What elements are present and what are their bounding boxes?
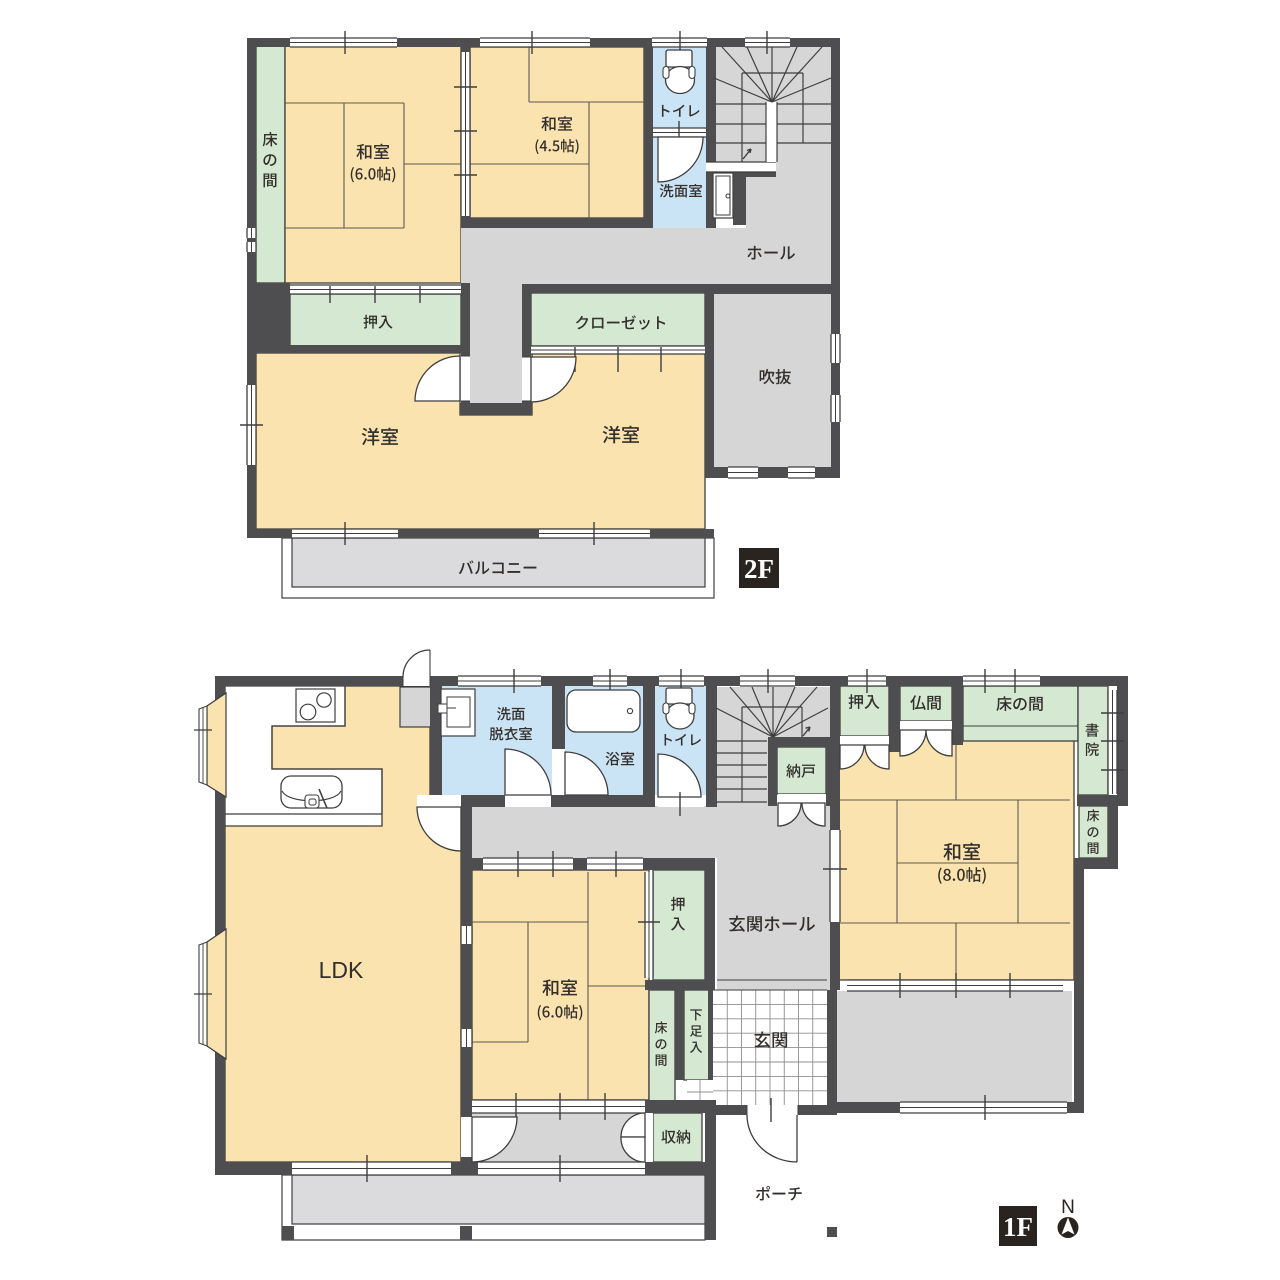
svg-text:2F: 2F xyxy=(744,554,774,584)
svg-text:LDK: LDK xyxy=(319,957,364,983)
svg-text:1F: 1F xyxy=(1003,1212,1033,1242)
svg-text:N: N xyxy=(1061,1197,1075,1218)
